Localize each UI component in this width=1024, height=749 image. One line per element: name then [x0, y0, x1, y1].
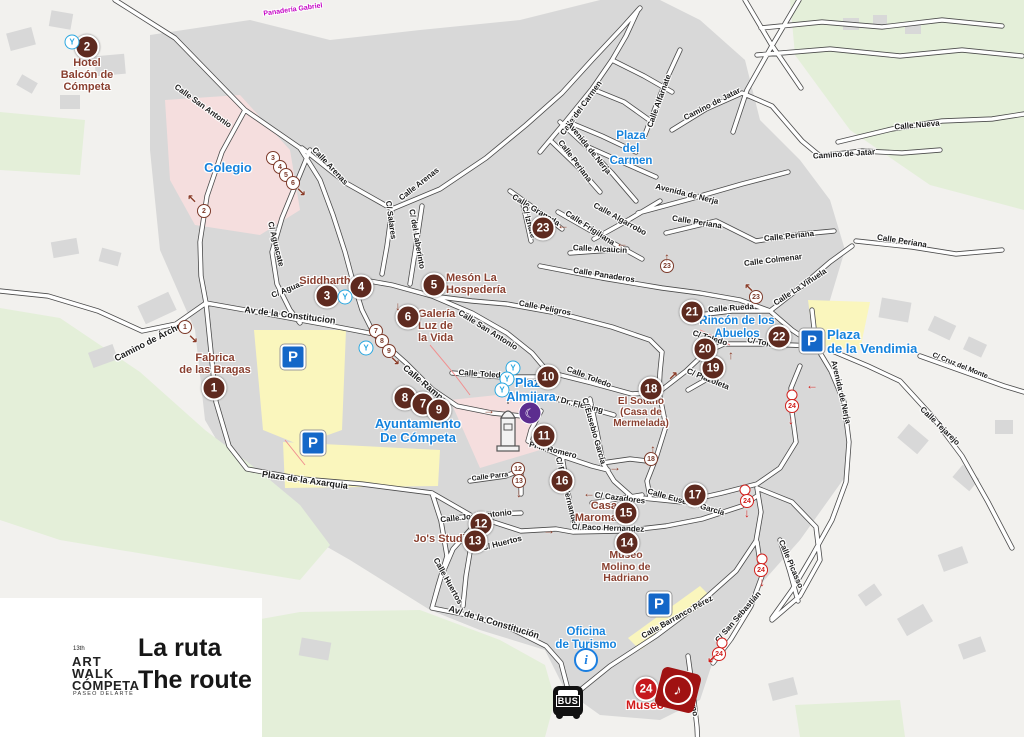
- parking-icon: P: [800, 329, 825, 354]
- route-direction-arrow: ←: [557, 218, 569, 232]
- poi-label-line: Balcón de: [61, 69, 114, 81]
- poi-label-line: la Vida: [418, 332, 455, 344]
- fountain-y-icon: Y: [338, 290, 353, 305]
- stop-marker-3: 3: [315, 284, 340, 309]
- route-direction-arrow: ←: [583, 486, 595, 500]
- stop-marker-15: 15: [614, 501, 639, 526]
- moon-badge-icon: ☾: [519, 402, 542, 425]
- stop-marker-9: 9: [427, 398, 452, 423]
- route-direction-arrow: ←: [806, 378, 818, 392]
- poi-label: Plazade la Vendimia: [827, 328, 917, 357]
- bus-stop-icon: BUS: [553, 686, 583, 716]
- route-direction-arrow: ↓: [516, 486, 522, 500]
- poi-label-line: Cómpeta: [61, 81, 114, 93]
- route-title-spanish: La ruta: [138, 634, 221, 663]
- bottom-margin: [0, 737, 1024, 749]
- route-direction-arrow: ↖: [187, 192, 197, 206]
- poi-label-line: (Casa de: [613, 407, 669, 418]
- bus-label: BUS: [556, 695, 581, 707]
- route-direction-arrow: ↙: [707, 652, 717, 666]
- route-direction-arrow: ↑: [664, 250, 670, 264]
- poi-label: PlazadelCarmen: [610, 130, 653, 168]
- poi-label-line: Hospedería: [446, 284, 506, 296]
- legend-panel: 13th ART WALK CÓMPETA PASEO DELARTE La r…: [0, 598, 262, 749]
- route-direction-arrow: ↘: [390, 354, 400, 368]
- poi-label-line: Mesón La: [446, 272, 506, 284]
- poi-label: Colegio: [204, 161, 252, 175]
- poi-label: HotelBalcón deCómpeta: [61, 57, 114, 93]
- poi-label-line: Plaza: [827, 328, 917, 342]
- stop-marker-23: 23: [531, 216, 556, 241]
- poi-label: GaleríaLuz dela Vida: [418, 308, 455, 344]
- stop-marker-1: 1: [202, 376, 227, 401]
- poi-label: Fabricade las Bragas: [179, 352, 251, 376]
- stop-marker-11: 11: [532, 424, 557, 449]
- fountain-y-icon: Y: [65, 35, 80, 50]
- poi-label-line: de la Vendimia: [827, 342, 917, 356]
- parking-icon: P: [281, 345, 306, 370]
- route-direction-arrow: ↓: [744, 506, 750, 520]
- route-direction-arrow: ↑: [650, 442, 656, 456]
- stop-marker-21: 21: [680, 300, 705, 325]
- poi-label-line: Galería: [418, 308, 455, 320]
- poi-label: AyuntamientoDe Cómpeta: [375, 417, 461, 446]
- legend-edition: 13th: [73, 646, 85, 652]
- route-direction-arrow: ↘: [188, 332, 198, 346]
- route-direction-arrow: →: [543, 523, 555, 537]
- poi-label-line: Rincón de los: [699, 315, 774, 328]
- route-direction-arrow: ↑: [728, 348, 734, 362]
- route-number-badge-2: 2: [197, 204, 211, 218]
- poi-label-line: de las Bragas: [179, 364, 251, 376]
- poi-label-line: Oficina: [555, 626, 616, 639]
- stop-marker-20: 20: [693, 337, 718, 362]
- poi-label: CasaMaroma: [575, 500, 617, 524]
- poi-label-line: De Cómpeta: [375, 431, 461, 445]
- poi-label-line: Plaza: [610, 130, 653, 143]
- poi-label-line: Luz de: [418, 320, 455, 332]
- poi-label-line: Colegio: [204, 161, 252, 175]
- poi-label-line: Hadriano: [602, 573, 651, 585]
- tourist-info-icon: i: [574, 648, 598, 672]
- fountain-y-icon: Y: [495, 383, 510, 398]
- stop-marker-5: 5: [422, 273, 447, 298]
- route-direction-arrow: ↗: [668, 369, 678, 383]
- poi-label-line: Mermelada): [613, 418, 669, 429]
- fountain-y-icon: Y: [359, 341, 374, 356]
- poi-label-line: del: [610, 143, 653, 156]
- stop-marker-13: 13: [463, 529, 488, 554]
- route-direction-arrow: ↓: [759, 575, 765, 589]
- route-number-badge-24: 24: [785, 399, 799, 413]
- legend-logo-subtitle: PASEO DELARTE: [73, 691, 134, 697]
- poi-label-line: Carmen: [610, 155, 653, 168]
- stop-marker-14: 14: [615, 531, 640, 556]
- poi-label-line: Fabrica: [179, 352, 251, 364]
- competa-art-walk-map: 13th ART WALK CÓMPETA PASEO DELARTE La r…: [0, 0, 1024, 749]
- poi-label-line: Casa: [575, 500, 617, 512]
- stop-marker-22: 22: [767, 325, 792, 350]
- poi-label: Rincón de losAbuelos: [699, 315, 774, 340]
- poi-label-line: Ayuntamiento: [375, 417, 461, 431]
- poi-label: Mesón LaHospedería: [446, 272, 506, 296]
- route-direction-arrow: ←: [616, 236, 628, 250]
- music-note-icon: ♪: [660, 672, 696, 708]
- poi-label: El Sotano(Casa deMermelada): [613, 396, 669, 429]
- route-direction-arrow: ↓: [788, 413, 794, 427]
- parking-icon: P: [647, 592, 672, 617]
- route-direction-arrow: →: [483, 403, 495, 417]
- route-title-english: The route: [138, 666, 252, 695]
- parking-icon: P: [301, 431, 326, 456]
- stop-marker-18: 18: [639, 377, 664, 402]
- route-direction-arrow: ↓: [395, 299, 401, 313]
- route-direction-arrow: →: [609, 460, 621, 474]
- route-direction-arrow: ↘: [296, 185, 306, 199]
- stop-marker-17: 17: [683, 483, 708, 508]
- stop-marker-10: 10: [536, 365, 561, 390]
- stop-marker-16: 16: [550, 469, 575, 494]
- route-direction-arrow: ↖: [744, 281, 754, 295]
- poi-label-line: Maroma: [575, 512, 617, 524]
